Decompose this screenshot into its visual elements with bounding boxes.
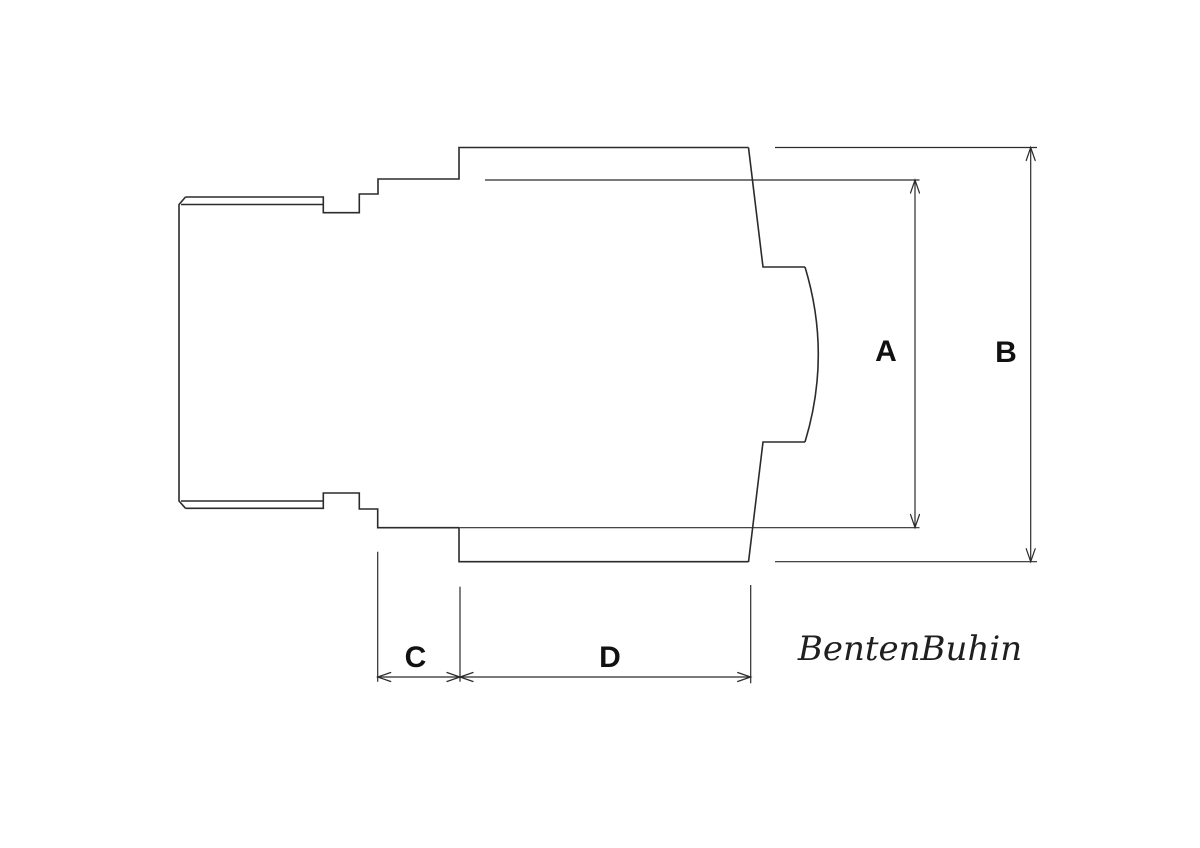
part-left-edge	[179, 197, 186, 508]
dim-d-label: D	[599, 641, 621, 674]
dimension-c-d: C D	[378, 552, 751, 684]
break-line-bottom	[749, 442, 806, 562]
dim-b-label: B	[995, 336, 1017, 369]
dimension-a: A	[460, 180, 920, 528]
dim-c-label: C	[405, 641, 427, 674]
part-outline	[179, 148, 818, 563]
socket-mouth-arc	[805, 267, 818, 442]
break-line-top	[749, 148, 806, 268]
technical-drawing-canvas: A B C D BentenBuhin	[0, 0, 1200, 848]
part-dimension-diagram: A B C D BentenBuhin	[0, 0, 1200, 848]
dimension-b: B	[775, 148, 1037, 562]
dim-a-label: A	[875, 335, 897, 368]
brand-signature: BentenBuhin	[797, 629, 1022, 669]
